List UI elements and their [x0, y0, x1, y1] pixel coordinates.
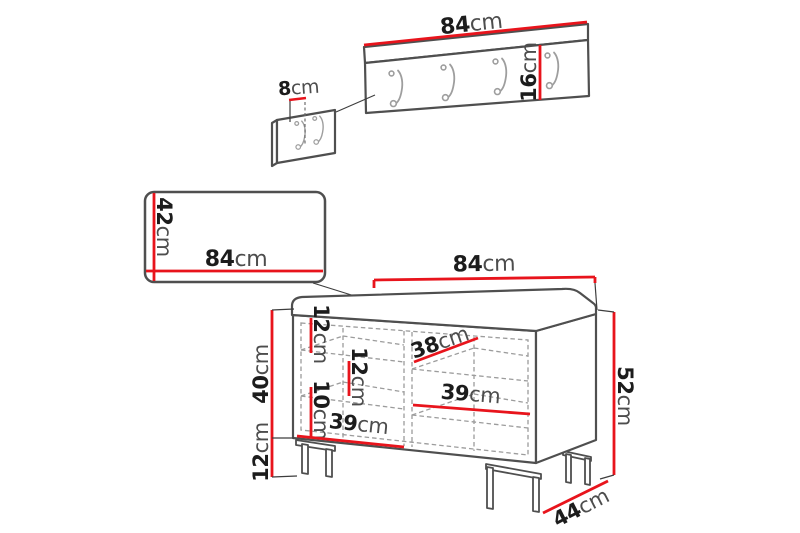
detail-panel: [277, 110, 335, 163]
dim-label-bench-depth: 44cm: [549, 484, 613, 532]
bench-leg: [487, 467, 493, 509]
hook-spacing-detail: 8cm: [272, 76, 375, 166]
bench-leg: [326, 449, 332, 477]
dim-label-rack-height: 16cm: [517, 42, 541, 102]
shoe-bench: 84cm 40cm 12cm 52cm 44cm 12cm: [249, 251, 637, 532]
bench-side-face: [536, 314, 596, 463]
dim-label-hook-offset: 8cm: [277, 76, 319, 101]
dim-tick: [600, 475, 614, 479]
dim-label-bench-total-height: 52cm: [613, 366, 637, 426]
mirror: 42cm 84cm: [145, 192, 377, 303]
dim-label-bench-width: 84cm: [452, 251, 515, 277]
bench-leg: [566, 454, 571, 483]
dim-label-shelf-width-mid: 39cm: [440, 380, 501, 409]
dim-label-shelf-gap-top: 12cm: [309, 304, 333, 364]
bench-leg: [533, 477, 539, 512]
bench-leg: [302, 444, 308, 474]
furniture-dimension-diagram: 84cm 16cm 8cm 42cm 84cm: [0, 0, 800, 533]
dim-tick: [598, 310, 614, 312]
bench-leg: [585, 458, 590, 485]
dim-tick: [272, 476, 297, 477]
dim-label-mirror-height: 42cm: [152, 197, 176, 257]
dim-tick: [272, 309, 294, 310]
dim-label-mirror-width: 84cm: [205, 247, 268, 272]
dim-label-bench-body-height: 40cm: [249, 344, 273, 404]
dim-label-shelf-gap-mid: 12cm: [347, 347, 371, 407]
wall-rack: 84cm 16cm: [364, 9, 589, 113]
dim-line-bench-width: [374, 277, 595, 280]
diagram-canvas: 84cm 16cm 8cm 42cm 84cm: [0, 0, 800, 533]
dim-label-bench-leg-height: 12cm: [249, 422, 273, 482]
